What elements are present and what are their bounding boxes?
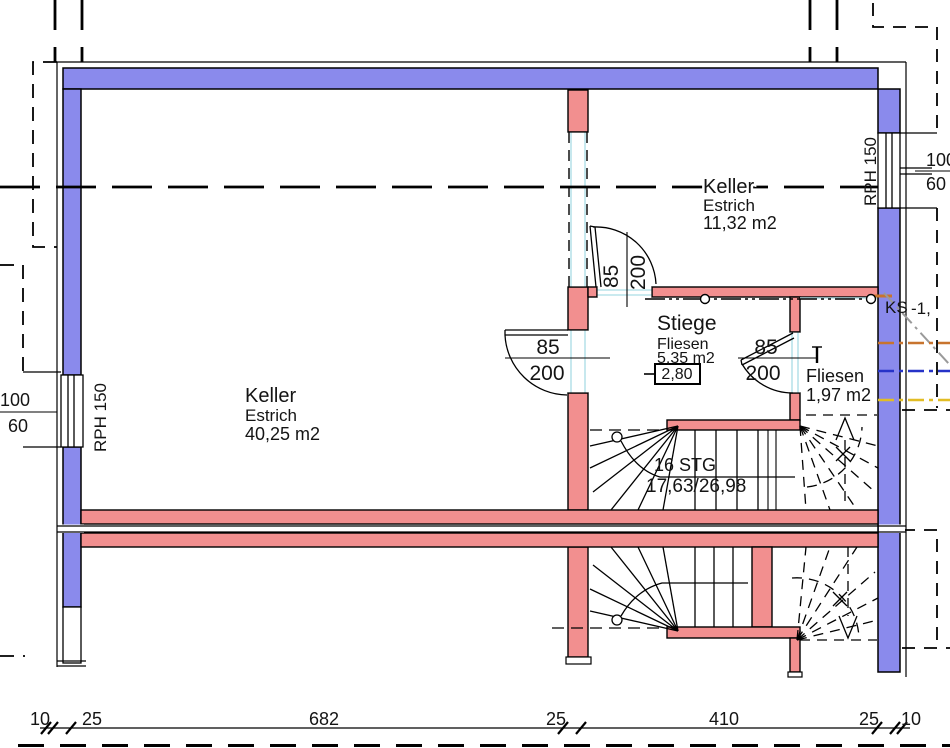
room4-area: 1,97 m2 — [806, 385, 871, 405]
ks-value: -1, — [911, 299, 931, 318]
dim-10-left: 10 — [30, 709, 50, 729]
door3-height: 200 — [745, 362, 780, 385]
ks-node-icon — [867, 295, 876, 304]
window-right — [878, 133, 950, 208]
door1-width: 85 — [536, 336, 559, 359]
window-right-width: 100 — [926, 150, 950, 170]
dim-10-right: 10 — [901, 709, 921, 729]
floor-plan: Keller Estrich 40,25 m2 Keller Estrich 1… — [0, 0, 950, 748]
exterior-wall-ends — [57, 607, 86, 666]
dim-682: 682 — [309, 709, 339, 729]
ks-label: KS — [885, 298, 908, 317]
utility-labels: KS -1, — [885, 298, 931, 318]
stair-labels: 16 STG 17,63/26,98 — [646, 455, 746, 497]
room3-level: 2,80 — [661, 366, 692, 383]
dimension-chain — [18, 722, 950, 746]
dim-410: 410 — [709, 709, 739, 729]
room3-name: Stiege — [657, 312, 717, 335]
room1-finish: Estrich — [245, 406, 297, 425]
dim-25-right: 25 — [859, 709, 879, 729]
room-labels: Keller Estrich 40,25 m2 Keller Estrich 1… — [245, 176, 871, 444]
window-left-width: 100 — [0, 390, 30, 410]
window-right-height: 60 — [926, 174, 946, 194]
room1-area: 40,25 m2 — [245, 424, 320, 444]
dim-25-mid: 25 — [546, 709, 566, 729]
room1-name: Keller — [245, 385, 296, 407]
room3-area: 5,35 m2 — [657, 350, 715, 367]
projection-dashes-left — [0, 62, 57, 656]
door2-height: 200 — [627, 255, 650, 290]
stair-upper-right-run — [800, 415, 878, 510]
door3-width: 85 — [754, 336, 777, 359]
door2-width: 85 — [600, 265, 623, 288]
window-right-rph: RPH 150 — [861, 137, 880, 206]
window-left-rph: RPH 150 — [91, 383, 110, 452]
dim-25-left: 25 — [82, 709, 102, 729]
slab-joint-lines — [57, 525, 906, 534]
stair-rise-run: 17,63/26,98 — [646, 476, 746, 497]
window-left-height: 60 — [8, 416, 28, 436]
room2-name: Keller — [703, 176, 754, 198]
room4-name: Fliesen — [806, 366, 864, 386]
wall-opening-dashed — [568, 132, 588, 287]
stair-count: 16 STG — [654, 455, 716, 475]
interior-wall-ends — [566, 657, 802, 677]
dimension-labels: 10 25 682 25 410 25 10 — [30, 709, 921, 729]
room2-area: 11,32 m2 — [703, 213, 777, 233]
projection-dashes-top — [55, 0, 837, 62]
door1-height: 200 — [529, 362, 564, 385]
ks-node-icon — [701, 295, 710, 304]
